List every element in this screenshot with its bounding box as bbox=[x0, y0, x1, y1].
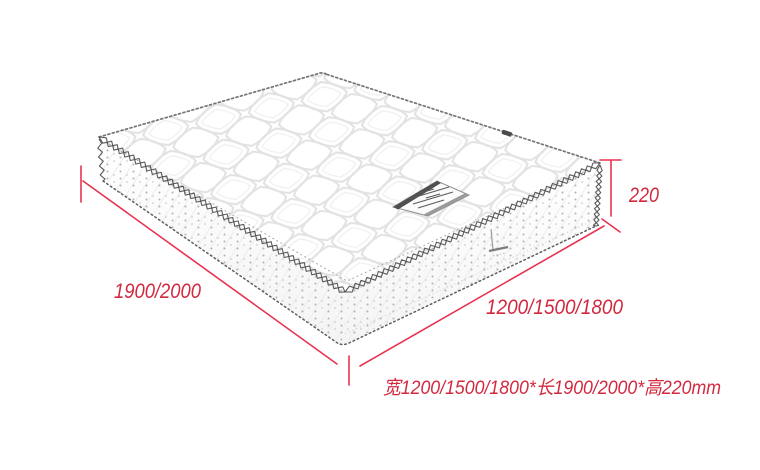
height-width-shared-tick bbox=[602, 219, 620, 232]
height-dimension-label: 220 bbox=[628, 184, 659, 207]
width-dimension-label: 1200/1500/1800 bbox=[486, 296, 623, 319]
length-dimension-label: 1900/2000 bbox=[114, 280, 201, 303]
diagram-canvas: 1900/2000 1200/1500/1800 220 宽1200/1500/… bbox=[0, 0, 760, 470]
mattress-diagram-svg: 1900/2000 1200/1500/1800 220 宽1200/1500/… bbox=[0, 0, 760, 470]
spec-label: 宽1200/1500/1800*长1900/2000*高220mm bbox=[383, 377, 721, 399]
